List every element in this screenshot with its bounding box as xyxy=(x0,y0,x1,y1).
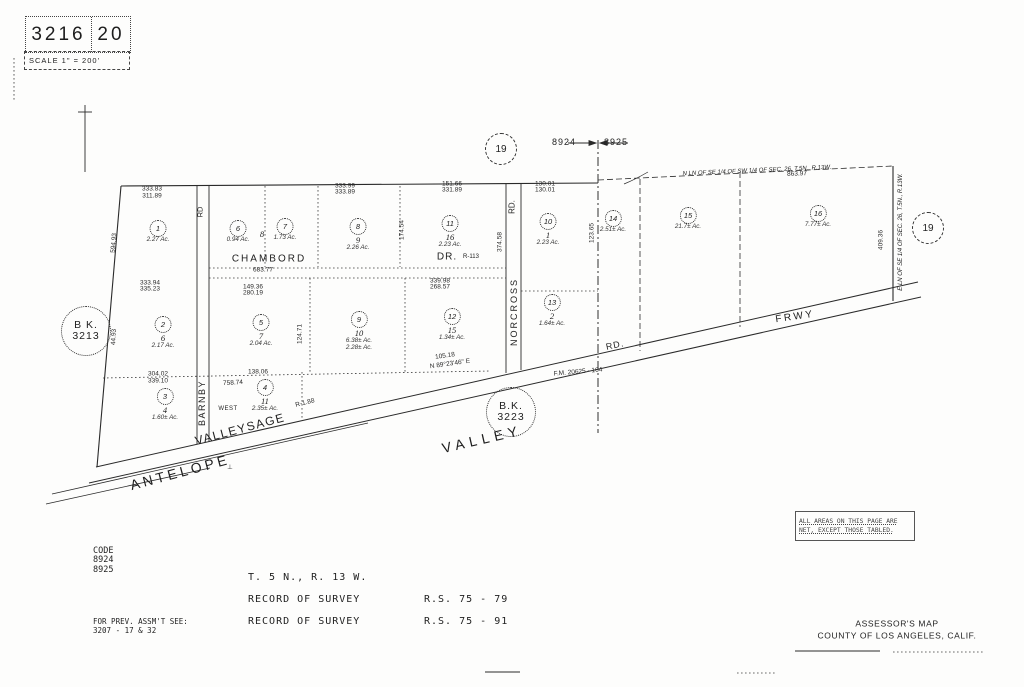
parcel-circle: 14 xyxy=(604,210,621,227)
parcel-circle: 16 xyxy=(809,205,826,222)
dimension-label: 268.57 xyxy=(430,284,450,291)
parcel-circle: 7 xyxy=(277,218,294,235)
parcel: 1321.64± Ac. xyxy=(539,292,565,328)
parcel-circle: 10 xyxy=(540,213,557,230)
assessor-map-sheet: 3216 20 SCALE 1" = 200' 19 19 8924 8925 … xyxy=(0,0,1024,687)
bearing-label-west: WEST xyxy=(218,406,237,412)
dimension-label: 123.65 xyxy=(589,223,596,243)
parcel-circle: 12 xyxy=(443,308,460,325)
parcel-area: 2.27 Ac. xyxy=(147,237,170,244)
dimension-label: 280.19 xyxy=(243,290,263,297)
parcel-circle: 6 xyxy=(230,220,247,237)
assessor-map-subtitle: COUNTY OF LOS ANGELES, CALIF. xyxy=(818,630,977,642)
parcel: 1521.7± Ac. xyxy=(675,205,701,231)
parcel-area: 0.94 Ac. xyxy=(227,237,250,244)
page-ref-right: 8925 xyxy=(604,137,628,147)
parcel: 142.51± Ac. xyxy=(600,208,626,234)
township-range-label: T. 5 N., R. 13 W. xyxy=(248,572,367,583)
parcel-area: 2.35± Ac. xyxy=(252,406,278,413)
prev-assessment-block: FOR PREV. ASSM'T SEE: 3207 - 17 & 32 xyxy=(93,617,188,636)
road-label-barnby-rd: RD xyxy=(196,207,205,218)
parcel: 12151.34± Ac. xyxy=(439,306,465,342)
book-ref-mid-line2: 3223 xyxy=(497,412,524,423)
map-ref-right-label: 19 xyxy=(922,223,933,234)
dimension-label: ⊥ xyxy=(227,463,233,471)
dimension-label: 335.23 xyxy=(140,286,160,293)
corner-marker xyxy=(78,105,92,172)
margin-rules xyxy=(485,651,880,672)
dimension-label: 863.97 xyxy=(787,170,807,178)
dimension-arrows xyxy=(568,141,648,184)
prev-assessment-label: FOR PREV. ASSM'T SEE: xyxy=(93,617,188,626)
parcel-area: 2.23 Ac. xyxy=(537,240,560,247)
page-ref-left: 8924 xyxy=(552,137,576,147)
parcel: 71.73 Ac. xyxy=(274,216,297,242)
area-note-line1: ALL AREAS ON THIS PAGE ARE xyxy=(799,517,911,526)
record-of-survey-1-ref: R.S. 75 - 79 xyxy=(424,594,508,605)
dimension-label: 130.01 xyxy=(535,187,555,194)
section-dashed-lines xyxy=(598,166,893,351)
map-ref-circle-top: 19 xyxy=(485,133,517,165)
lot-8-label: 8 xyxy=(260,229,264,239)
parcel-area: 2.04 Ac. xyxy=(250,341,273,348)
dimension-label: 304.02 xyxy=(148,371,168,378)
parcel-area: 1.73 Ac. xyxy=(274,235,297,242)
parcel-circle: 4 xyxy=(256,379,273,396)
parcel-area: 2.51± Ac. xyxy=(600,227,626,234)
map-book-page-box: 3216 20 xyxy=(25,16,131,53)
parcel: 262.17 Ac. xyxy=(152,314,175,350)
code-value-2: 8925 xyxy=(93,566,113,575)
area-note-box: ALL AREAS ON THIS PAGE ARE NET, EXCEPT T… xyxy=(795,511,915,541)
scale-label: SCALE 1" = 200' xyxy=(24,51,130,70)
parcel-area: 7.77± Ac. xyxy=(805,222,831,229)
parcel-area: 2.26 Ac. xyxy=(347,245,370,252)
dimension-label: 174.54 xyxy=(399,220,406,240)
dimension-label: 44.93 xyxy=(110,329,118,346)
dimension-label: 409.36 xyxy=(878,230,885,250)
parcel-circle: 5 xyxy=(253,314,270,331)
road-label-chambord: CHAMBORD xyxy=(232,254,306,265)
record-of-survey-1: RECORD OF SURVEY xyxy=(248,594,360,605)
road-label-norcross-rd: RD. xyxy=(508,200,517,214)
parcel-circle: 13 xyxy=(543,294,560,311)
dimension-label: 339.10 xyxy=(148,378,168,385)
map-ref-circle-right: 19 xyxy=(912,212,944,244)
road-label-barnby: BARNBY xyxy=(197,380,207,426)
dimension-label: 683.77 xyxy=(253,267,273,274)
parcel-area-2: 2.28± Ac. xyxy=(346,345,372,352)
parcel: 4112.35± Ac. xyxy=(252,377,278,413)
parcel-area: 2.23 Ac. xyxy=(439,242,462,249)
dimension-label: 758.74 xyxy=(223,379,243,387)
parcel-area: 1.64± Ac. xyxy=(539,321,565,328)
parcel-circle: 8 xyxy=(350,218,367,235)
parcel: 60.94 Ac. xyxy=(227,218,250,244)
prev-assessment-ref: 3207 - 17 & 32 xyxy=(93,626,188,635)
book-ref-left-line2: 3213 xyxy=(72,331,99,342)
parcel: 572.04 Ac. xyxy=(250,312,273,348)
map-ref-top-label: 19 xyxy=(495,144,506,155)
code-block: CODE 8924 8925 xyxy=(93,547,113,575)
record-of-survey-2: RECORD OF SURVEY xyxy=(248,616,360,627)
map-book-number: 3216 xyxy=(26,17,91,52)
parcel-circle: 15 xyxy=(679,207,696,224)
east-section-line-label: E LN OF SE 1/4 OF SEC. 26, T.5N., R.13W. xyxy=(898,173,904,290)
parcel-circle: 11 xyxy=(442,215,459,232)
parcel: 341.60± Ac. xyxy=(152,386,178,422)
parcel-area: 21.7± Ac. xyxy=(675,224,701,231)
parcel: 167.77± Ac. xyxy=(805,203,831,229)
parcel-area: 1.60± Ac. xyxy=(152,415,178,422)
parcel-circle: 3 xyxy=(156,388,173,405)
parcel-circle: 1 xyxy=(150,220,167,237)
record-of-survey-2-ref: R.S. 75 - 91 xyxy=(424,616,508,627)
assessor-map-title: ASSESSOR'S MAP xyxy=(818,618,977,630)
dimension-label: 124.71 xyxy=(297,324,304,344)
parcel-area: 1.34± Ac. xyxy=(439,335,465,342)
dimension-label: 374.58 xyxy=(497,232,504,252)
dimension-label: 333.89 xyxy=(335,189,355,196)
dimension-label: 311.89 xyxy=(142,193,161,200)
parcel-circle: 2 xyxy=(155,316,172,333)
dimension-label: 331.89 xyxy=(442,187,462,194)
road-note-r113: R-113 xyxy=(463,254,479,260)
area-note-line2: NET, EXCEPT THOSE TABLED. xyxy=(799,526,911,535)
parcel: 12.27 Ac. xyxy=(147,218,170,244)
dimension-label: 138.06 xyxy=(248,369,268,376)
road-label-chambord-dr: DR. xyxy=(437,252,457,263)
parcel-area: 2.17 Ac. xyxy=(152,343,175,350)
parcel: 11162.23 Ac. xyxy=(439,213,462,249)
book-ref-circle-left: B K. 3213 xyxy=(61,306,111,356)
parcel: 892.26 Ac. xyxy=(347,216,370,252)
map-page-number: 20 xyxy=(91,17,130,52)
parcel: 9106.38± Ac.2.28± Ac. xyxy=(346,309,372,352)
parcel: 1012.23 Ac. xyxy=(537,211,560,247)
road-label-norcross: NORCROSS xyxy=(509,278,519,346)
dimension-label: 333.83 xyxy=(142,186,162,193)
assessor-title-block: ASSESSOR'S MAP COUNTY OF LOS ANGELES, CA… xyxy=(818,618,977,643)
parcel-circle: 9 xyxy=(350,311,367,328)
